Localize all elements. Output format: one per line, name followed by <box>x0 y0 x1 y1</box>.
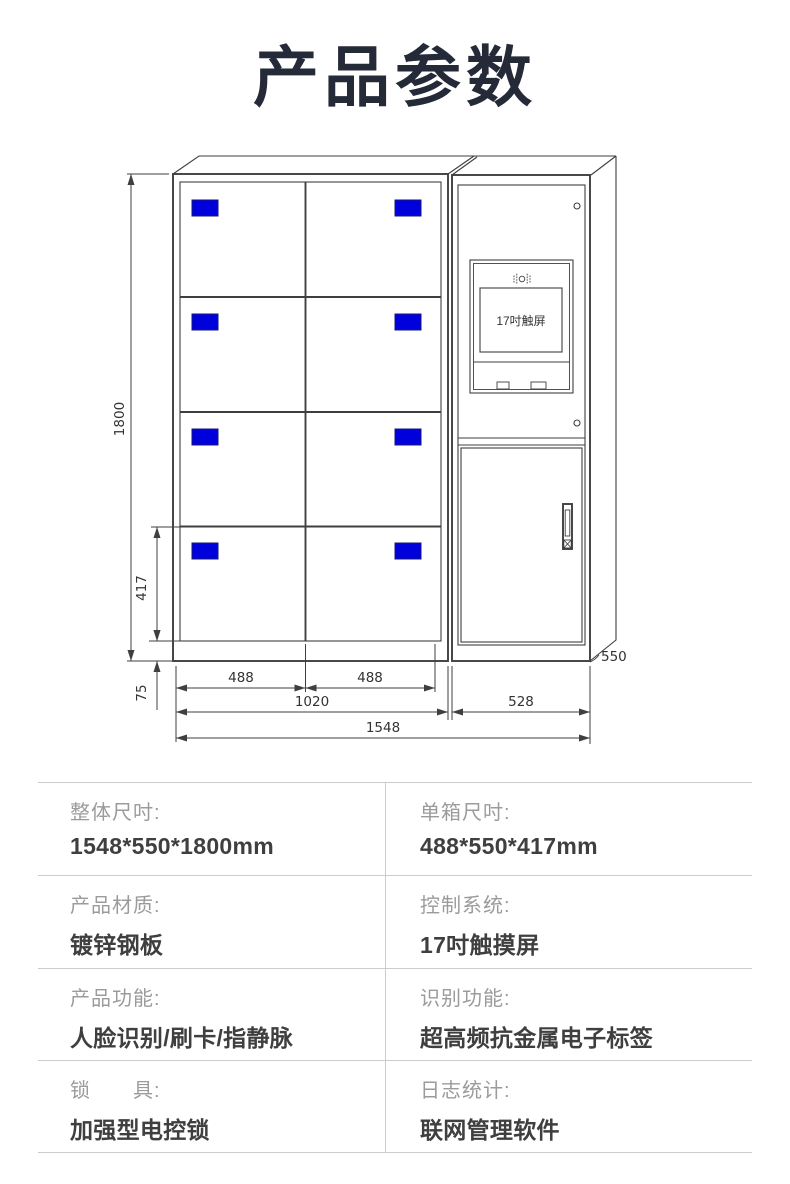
spec-value: 人脸识别/刷卡/指静脉 <box>70 1019 385 1053</box>
product-spec-page: 产品参数 <box>0 0 790 1184</box>
spec-cell-log: 日志统计: 联网管理软件 <box>385 1061 752 1152</box>
spec-cell-single-box-size: 单箱尺吋: 488*550*417mm <box>385 783 752 875</box>
dim-label-control-width: 528 <box>508 694 534 710</box>
cabinet-top-face <box>173 156 616 174</box>
table-column-divider <box>385 782 386 1153</box>
spec-cell-lock: 锁 具: 加强型电控锁 <box>38 1061 385 1152</box>
door-handle <box>563 504 572 549</box>
handle-body <box>563 504 572 549</box>
table-row: 产品功能: 人脸识别/刷卡/指静脉 识别功能: 超高频抗金属电子标签 <box>38 968 752 1061</box>
handle-slot <box>565 510 570 536</box>
spec-table: 整体尺吋: 1548*550*1800mm 单箱尺吋: 488*550*417m… <box>38 782 752 1153</box>
dim-label-box-width-right: 488 <box>357 670 383 686</box>
cabinet-top-right-slant <box>448 156 474 174</box>
door-label-plate <box>395 200 421 216</box>
spec-value: 联网管理软件 <box>420 1111 752 1145</box>
door-label-plate <box>192 314 218 330</box>
table-row: 产品材质: 镀锌钢板 控制系统: 17吋触摸屏 <box>38 875 752 968</box>
dim-label-total-width: 1548 <box>366 720 400 736</box>
dim-label-box-width-left: 488 <box>228 670 254 686</box>
dim-label-base-height: 75 <box>134 684 150 701</box>
spec-cell-product-function: 产品功能: 人脸识别/刷卡/指静脉 <box>38 969 385 1061</box>
card-slot <box>497 382 509 389</box>
table-row: 锁 具: 加强型电控锁 日志统计: 联网管理软件 <box>38 1060 752 1153</box>
spec-cell-overall-size: 整体尺吋: 1548*550*1800mm <box>38 783 385 875</box>
spec-value: 超高频抗金属电子标签 <box>420 1019 752 1053</box>
spec-label: 日志统计: <box>420 1074 752 1103</box>
spec-value: 17吋触摸屏 <box>420 926 752 960</box>
spec-cell-recognition: 识别功能: 超高频抗金属电子标签 <box>385 969 752 1061</box>
control-top-slant <box>452 157 477 175</box>
spec-label: 单箱尺吋: <box>420 796 752 825</box>
door-label-plate <box>192 200 218 216</box>
door-label-plate <box>395 429 421 445</box>
touch-screen-label: 17吋触屏 <box>496 314 545 328</box>
screw-icon <box>574 420 580 426</box>
card-slot <box>531 382 546 389</box>
control-cabinet: 17吋触屏 <box>452 156 616 661</box>
spec-label: 整体尺吋: <box>70 796 385 825</box>
spec-label: 识别功能: <box>420 982 752 1011</box>
spec-cell-material: 产品材质: 镀锌钢板 <box>38 876 385 968</box>
control-side-face <box>590 156 616 661</box>
spec-label: 控制系统: <box>420 889 752 918</box>
control-inner-frame <box>458 185 585 645</box>
table-row: 整体尺吋: 1548*550*1800mm 单箱尺吋: 488*550*417m… <box>38 782 752 875</box>
spec-label: 产品材质: <box>70 889 385 918</box>
spec-label: 锁 具: <box>70 1074 385 1103</box>
door-label-plate <box>395 543 421 559</box>
spec-value: 镀锌钢板 <box>70 926 385 960</box>
locker-front-face <box>173 174 448 661</box>
dim-label-lockers-width: 1020 <box>295 694 329 710</box>
control-front-face <box>452 175 590 661</box>
dim-label-total-height: 1800 <box>112 402 128 436</box>
spec-value: 488*550*417mm <box>420 833 752 860</box>
camera-vibration-marks <box>514 274 530 284</box>
camera-icon <box>519 276 525 282</box>
door-label-plate <box>395 314 421 330</box>
control-top-right-slant <box>591 156 616 175</box>
door-label-plate <box>192 543 218 559</box>
cabinet-technical-drawing: 17吋触屏 1800 <box>105 142 665 774</box>
handle-lock-cross <box>564 540 571 548</box>
locker-cabinet <box>173 156 616 661</box>
spec-value: 加强型电控锁 <box>70 1111 385 1145</box>
spec-value: 1548*550*1800mm <box>70 833 385 860</box>
control-panel: 17吋触屏 <box>470 260 573 393</box>
screw-icon <box>574 203 580 209</box>
dim-label-box-height: 417 <box>134 575 150 601</box>
locker-door-labels <box>192 200 421 559</box>
spec-cell-control-system: 控制系统: 17吋触摸屏 <box>385 876 752 968</box>
door-label-plate <box>192 429 218 445</box>
leader-line-depth <box>590 655 599 662</box>
dim-label-depth: 550 <box>601 649 627 665</box>
spec-label: 产品功能: <box>70 982 385 1011</box>
page-title: 产品参数 <box>0 24 790 120</box>
